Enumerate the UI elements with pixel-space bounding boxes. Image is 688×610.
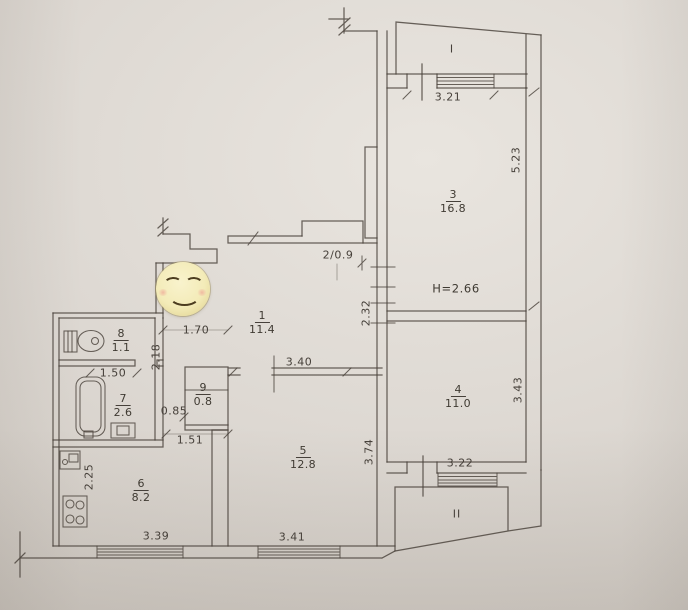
balcony-1-label: I [450, 44, 454, 55]
dim-2-25: 2.25 [84, 464, 95, 491]
dim-3-74: 3.74 [364, 439, 375, 466]
balcony-1-outline [396, 22, 541, 88]
smiley-face-emoji [156, 262, 210, 316]
room-9-label: 9 0.8 [194, 378, 213, 407]
stove-icon [63, 496, 87, 527]
hall-top-wall [228, 221, 377, 280]
room-7-label: 7 2.6 [114, 389, 133, 418]
ceiling-height-note: H=2.66 [432, 283, 480, 295]
window-room4 [438, 473, 497, 486]
dim-1-50: 1.50 [100, 368, 127, 379]
dim-3-41: 3.41 [279, 532, 306, 543]
dim-0-85: 0.85 [161, 406, 188, 417]
room3-room4-wall [387, 311, 526, 321]
room-6-label: 6 8.2 [132, 474, 151, 503]
dim-1-70: 1.70 [183, 325, 210, 336]
spine-wall [365, 31, 395, 546]
dim-2-32: 2.32 [361, 300, 372, 327]
dim-3-21: 3.21 [435, 92, 462, 103]
dim-1-51: 1.51 [177, 435, 204, 446]
room-1-label: 1 11.4 [249, 306, 275, 335]
window-room5 [258, 546, 340, 558]
floorplan-lines [0, 0, 688, 610]
smiley-mouth [169, 286, 200, 306]
dim-3-22: 3.22 [447, 458, 474, 469]
window-room3 [437, 74, 494, 88]
closet-2-label: 2/0.9 [323, 250, 354, 261]
balcony-2-outline [395, 470, 541, 551]
kitchen-room5-wall [212, 375, 228, 546]
bathtub-icon [76, 377, 105, 438]
washbasin-icon [111, 423, 135, 438]
dim-3-40: 3.40 [286, 357, 313, 368]
balcony-2-label: II [453, 509, 462, 520]
room-3-label: 3 16.8 [440, 185, 466, 214]
room-5-label: 5 12.8 [290, 441, 316, 470]
dim-5-23: 5.23 [511, 147, 522, 174]
kitchen-sink-icon [60, 451, 80, 469]
room-4-label: 4 11.0 [445, 380, 471, 409]
dim-3-43: 3.43 [513, 377, 524, 404]
dim-2-18: 2.18 [151, 344, 162, 371]
dim-3-39: 3.39 [143, 531, 170, 542]
floorplan-photo: I II 1 11.4 2/0.9 3 16.8 4 11.0 5 12.8 6… [0, 0, 688, 610]
smiley-left-cheek [158, 289, 168, 296]
window-kitchen [97, 546, 183, 558]
room-8-label: 8 1.1 [112, 324, 131, 353]
toilet-icon [64, 331, 104, 353]
